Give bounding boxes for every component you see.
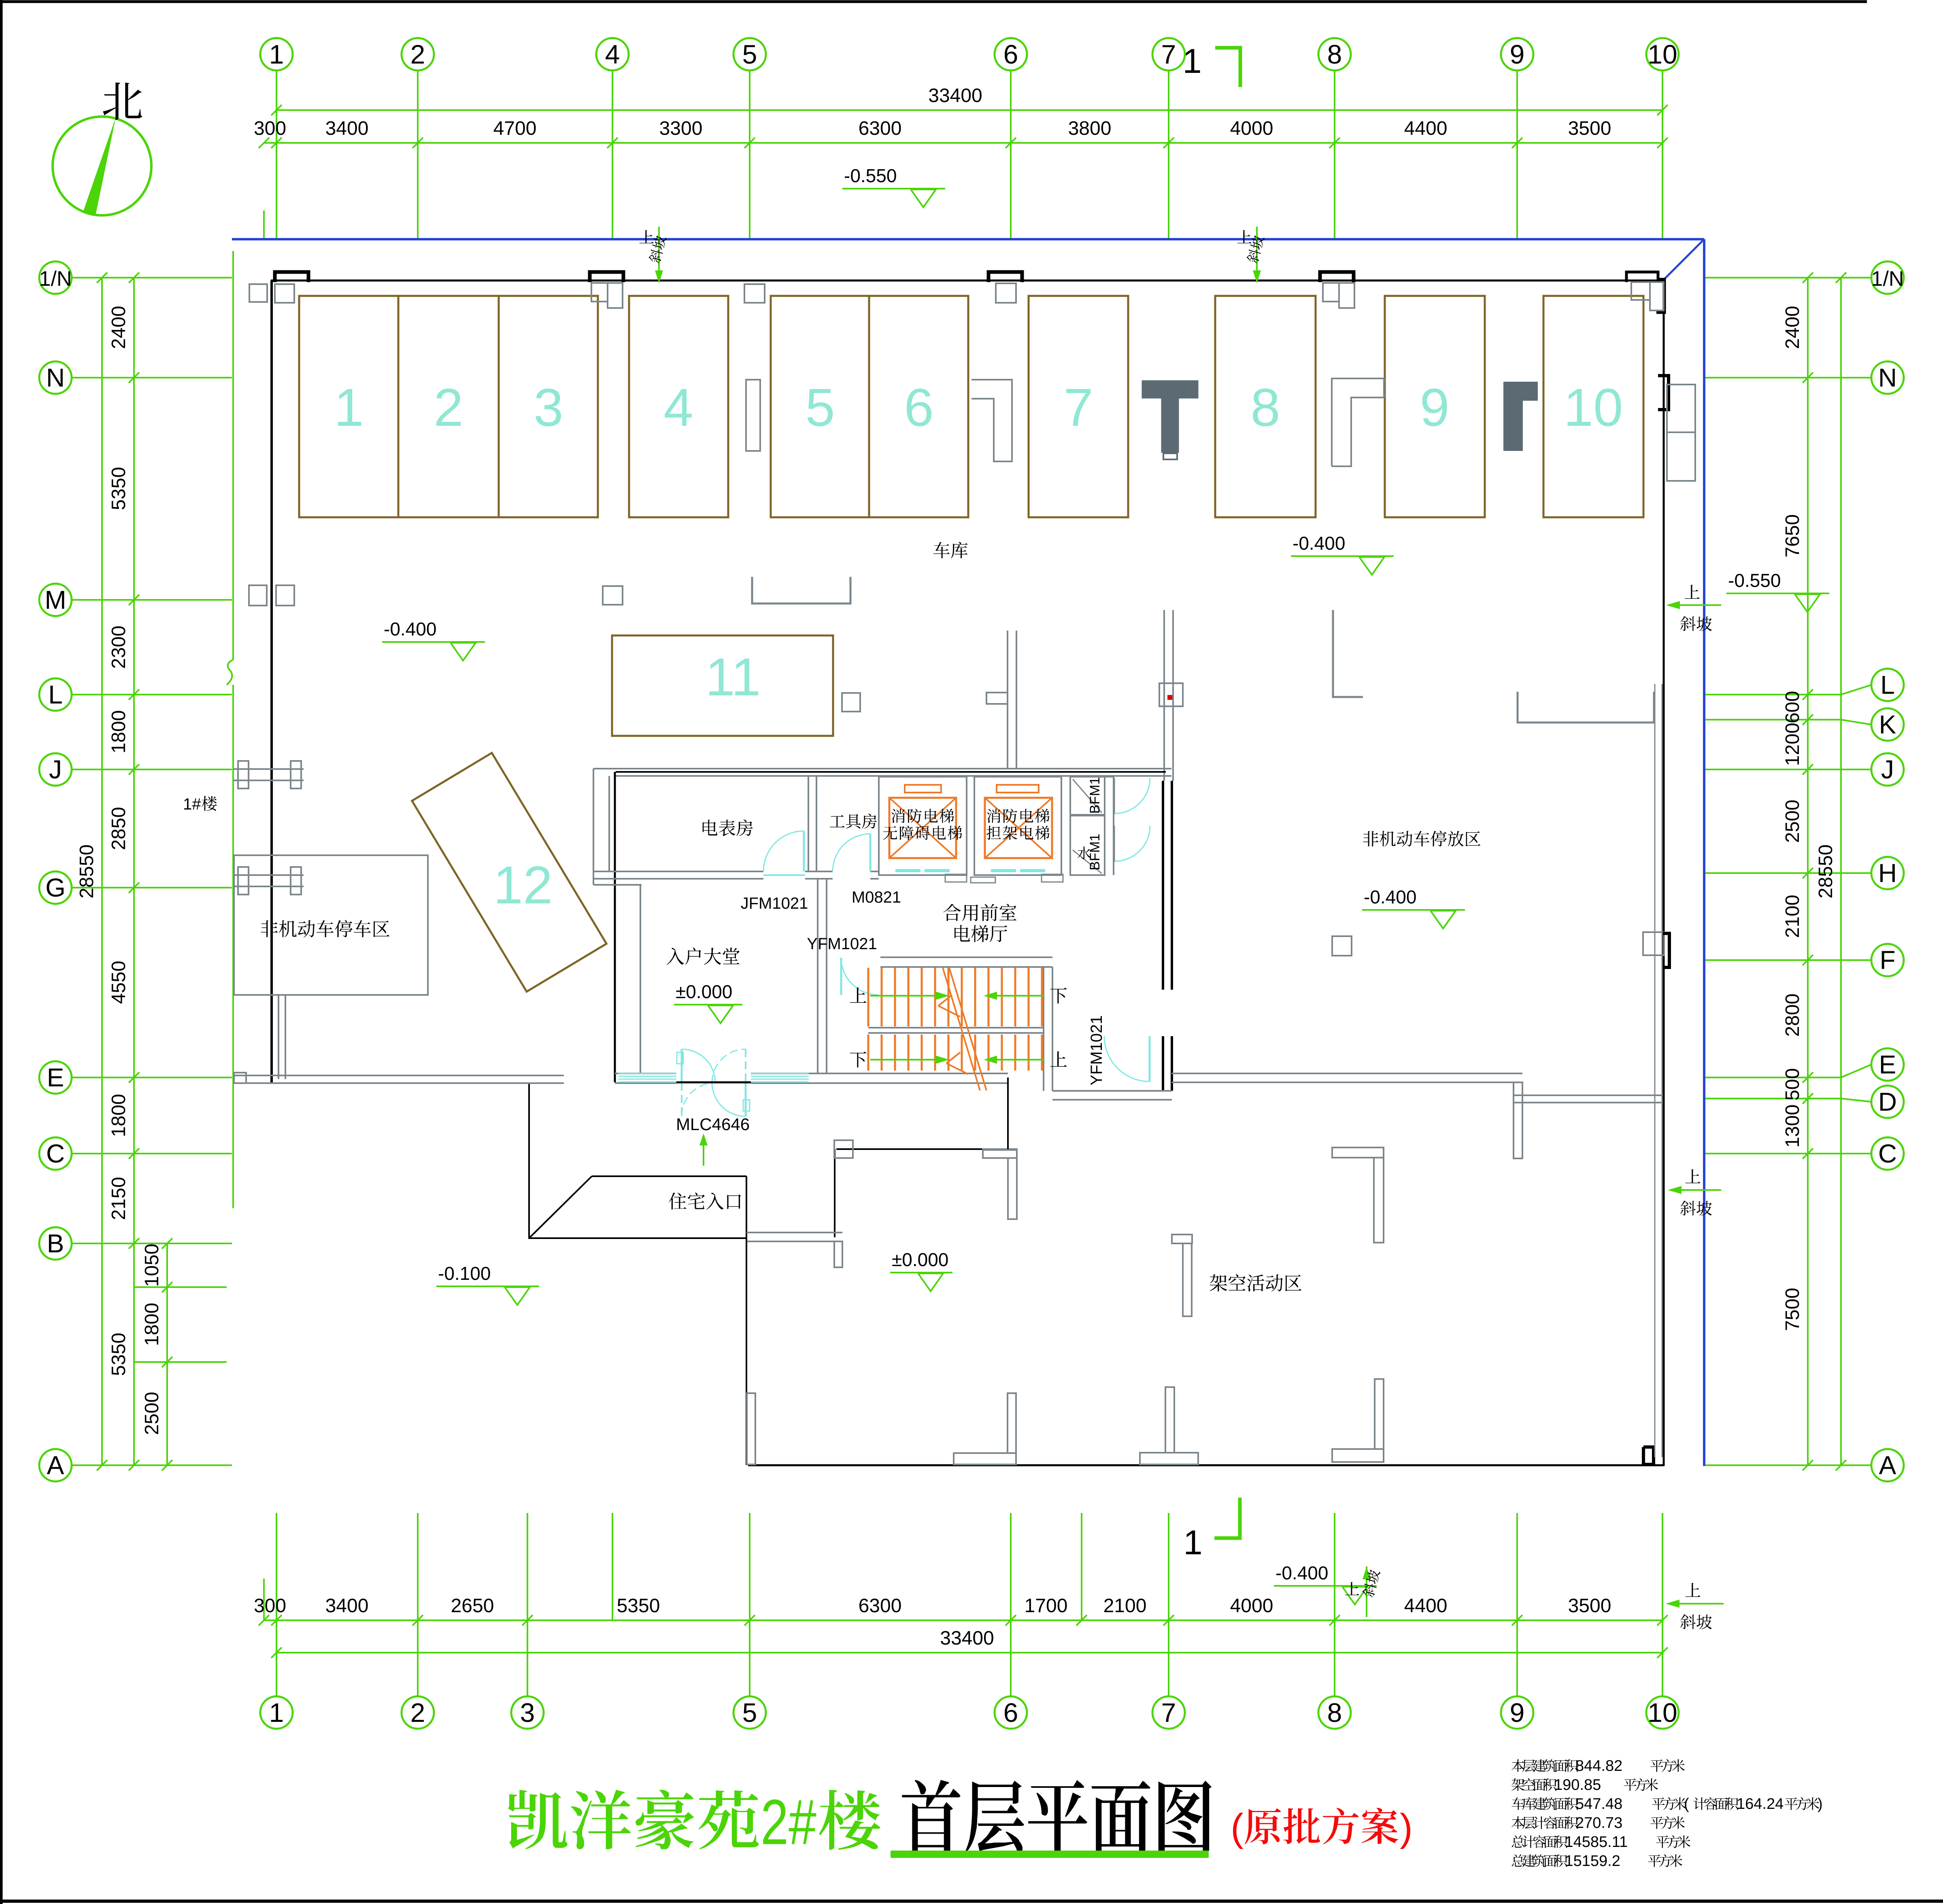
svg-text:±0.000: ±0.000 (676, 981, 732, 1002)
svg-text:2800: 2800 (1782, 994, 1803, 1037)
svg-text:2650: 2650 (451, 1595, 494, 1617)
svg-text:-0.550: -0.550 (1728, 570, 1781, 591)
svg-text:190.85: 190.85 (1554, 1776, 1601, 1793)
svg-text:4: 4 (605, 39, 620, 69)
svg-text:L: L (48, 680, 63, 709)
svg-text:500: 500 (1782, 1068, 1803, 1101)
svg-text:5: 5 (805, 378, 835, 437)
svg-text:A: A (1879, 1451, 1896, 1480)
svg-text:C: C (1878, 1139, 1897, 1168)
svg-text:(: ( (1231, 1806, 1244, 1849)
svg-text:6: 6 (904, 378, 933, 437)
svg-text:YFM1021: YFM1021 (1088, 1015, 1105, 1085)
svg-text:M0821: M0821 (852, 888, 901, 906)
svg-text:1800: 1800 (108, 710, 130, 754)
svg-text:1800: 1800 (141, 1303, 163, 1346)
svg-text:33400: 33400 (940, 1628, 994, 1649)
svg-text:4550: 4550 (108, 961, 130, 1004)
svg-text:-0.550: -0.550 (844, 165, 897, 186)
svg-text:D: D (1878, 1087, 1897, 1116)
svg-text:2400: 2400 (1782, 306, 1803, 349)
svg-text:F: F (1879, 946, 1895, 975)
svg-text:): ) (1818, 1796, 1823, 1813)
svg-text:2100: 2100 (1782, 895, 1803, 938)
svg-text:K: K (1879, 710, 1896, 739)
svg-text:6: 6 (1003, 39, 1018, 69)
svg-text:28550: 28550 (76, 844, 98, 898)
svg-text:-0.400: -0.400 (1275, 1562, 1328, 1583)
svg-text:1/N: 1/N (1871, 267, 1904, 291)
svg-text:844.82: 844.82 (1575, 1757, 1622, 1774)
svg-text:7: 7 (1063, 378, 1093, 437)
svg-text:2500: 2500 (141, 1392, 163, 1435)
svg-text:N: N (46, 363, 65, 392)
svg-text:8: 8 (1250, 378, 1280, 437)
svg-text:4: 4 (663, 378, 693, 437)
svg-text:5350: 5350 (617, 1595, 660, 1617)
svg-text:12: 12 (493, 855, 553, 915)
svg-text:3400: 3400 (325, 1595, 369, 1617)
svg-text:300: 300 (254, 118, 286, 139)
svg-text:9: 9 (1420, 378, 1449, 437)
svg-text:MLC4646: MLC4646 (676, 1115, 750, 1134)
svg-text:E: E (47, 1063, 64, 1092)
svg-text:1: 1 (1182, 42, 1201, 81)
svg-text:G: G (45, 873, 66, 902)
svg-text:2850: 2850 (108, 807, 130, 850)
svg-text:7: 7 (1161, 39, 1176, 69)
svg-text:9: 9 (1510, 1698, 1525, 1728)
svg-text:10: 10 (1648, 1698, 1677, 1728)
svg-text:3500: 3500 (1568, 118, 1611, 139)
svg-text:4000: 4000 (1230, 1595, 1273, 1617)
svg-text:±0.000: ±0.000 (892, 1249, 948, 1270)
svg-text:1050: 1050 (141, 1244, 163, 1287)
svg-text:1: 1 (334, 378, 364, 437)
svg-text:-0.400: -0.400 (1292, 533, 1345, 554)
svg-text:10: 10 (1564, 378, 1623, 437)
svg-text:600: 600 (1782, 691, 1803, 723)
svg-text:7500: 7500 (1782, 1288, 1803, 1331)
svg-text:3800: 3800 (1068, 118, 1112, 139)
svg-text:1300: 1300 (1782, 1105, 1803, 1148)
svg-text:J: J (1881, 755, 1894, 784)
svg-text:5: 5 (742, 1698, 757, 1728)
svg-text:6300: 6300 (859, 118, 902, 139)
svg-text:9: 9 (1510, 39, 1525, 69)
svg-text:JFM1021: JFM1021 (741, 895, 808, 912)
svg-text:-0.100: -0.100 (438, 1263, 491, 1284)
svg-text:11: 11 (705, 647, 761, 707)
svg-text:A: A (47, 1451, 64, 1480)
svg-text:4400: 4400 (1404, 118, 1448, 139)
svg-text:N: N (1878, 363, 1897, 392)
svg-text:3300: 3300 (659, 118, 703, 139)
svg-text:33400: 33400 (928, 85, 982, 106)
svg-text:3400: 3400 (325, 118, 369, 139)
svg-text:2100: 2100 (1103, 1595, 1147, 1617)
svg-text:8: 8 (1327, 39, 1342, 69)
svg-text:10: 10 (1648, 39, 1677, 69)
svg-text:14585.11: 14585.11 (1565, 1834, 1628, 1851)
svg-text:M: M (45, 585, 66, 614)
svg-text:4000: 4000 (1230, 118, 1273, 139)
svg-text:3: 3 (534, 378, 563, 437)
svg-text:5350: 5350 (108, 1333, 130, 1376)
svg-text:3: 3 (520, 1698, 535, 1728)
svg-text:2: 2 (410, 39, 425, 69)
svg-text:E: E (1879, 1050, 1896, 1079)
svg-text:2400: 2400 (108, 306, 130, 349)
svg-text:2: 2 (410, 1698, 425, 1728)
svg-text:-0.400: -0.400 (384, 618, 436, 640)
svg-text:270.73: 270.73 (1575, 1815, 1622, 1832)
svg-text:H: H (1878, 858, 1897, 888)
svg-text:2300: 2300 (108, 626, 130, 669)
svg-text:5: 5 (742, 39, 757, 69)
svg-text:164.24: 164.24 (1737, 1796, 1784, 1813)
svg-text:1200: 1200 (1782, 723, 1803, 766)
svg-text:): ) (1400, 1806, 1413, 1849)
svg-text:1: 1 (269, 1698, 284, 1728)
svg-text:6: 6 (1003, 1698, 1018, 1728)
svg-text:2#: 2# (761, 1787, 816, 1858)
svg-text:7: 7 (1161, 1698, 1176, 1728)
svg-text:-0.400: -0.400 (1364, 886, 1416, 907)
svg-text:1800: 1800 (108, 1094, 130, 1137)
svg-text:1#: 1# (183, 795, 201, 813)
svg-text:2150: 2150 (108, 1177, 130, 1220)
svg-text:4700: 4700 (493, 118, 537, 139)
svg-text:28550: 28550 (1815, 844, 1837, 898)
svg-text:4400: 4400 (1404, 1595, 1448, 1617)
svg-text:2: 2 (434, 378, 463, 437)
svg-text:8: 8 (1327, 1698, 1342, 1728)
svg-text:L: L (1880, 670, 1895, 699)
svg-text:15159.2: 15159.2 (1565, 1853, 1620, 1870)
svg-text:300: 300 (254, 1595, 286, 1617)
svg-text:1700: 1700 (1025, 1595, 1068, 1617)
svg-text:B: B (47, 1229, 64, 1258)
svg-text:5350: 5350 (108, 467, 130, 510)
svg-text:2500: 2500 (1782, 800, 1803, 843)
svg-text:(: ( (1684, 1796, 1689, 1813)
svg-text:3500: 3500 (1568, 1595, 1611, 1617)
svg-text:C: C (46, 1139, 65, 1168)
svg-text:6300: 6300 (859, 1595, 902, 1617)
svg-text:BFM1: BFM1 (1087, 777, 1103, 814)
svg-text:BFM1: BFM1 (1087, 834, 1103, 871)
svg-text:1: 1 (1183, 1524, 1202, 1562)
svg-text:547.48: 547.48 (1575, 1796, 1622, 1813)
svg-text:1: 1 (269, 39, 284, 69)
svg-text:7650: 7650 (1782, 514, 1803, 558)
svg-text:1/N: 1/N (39, 267, 72, 291)
svg-text:YFM1021: YFM1021 (807, 935, 877, 953)
svg-text:J: J (49, 755, 62, 784)
